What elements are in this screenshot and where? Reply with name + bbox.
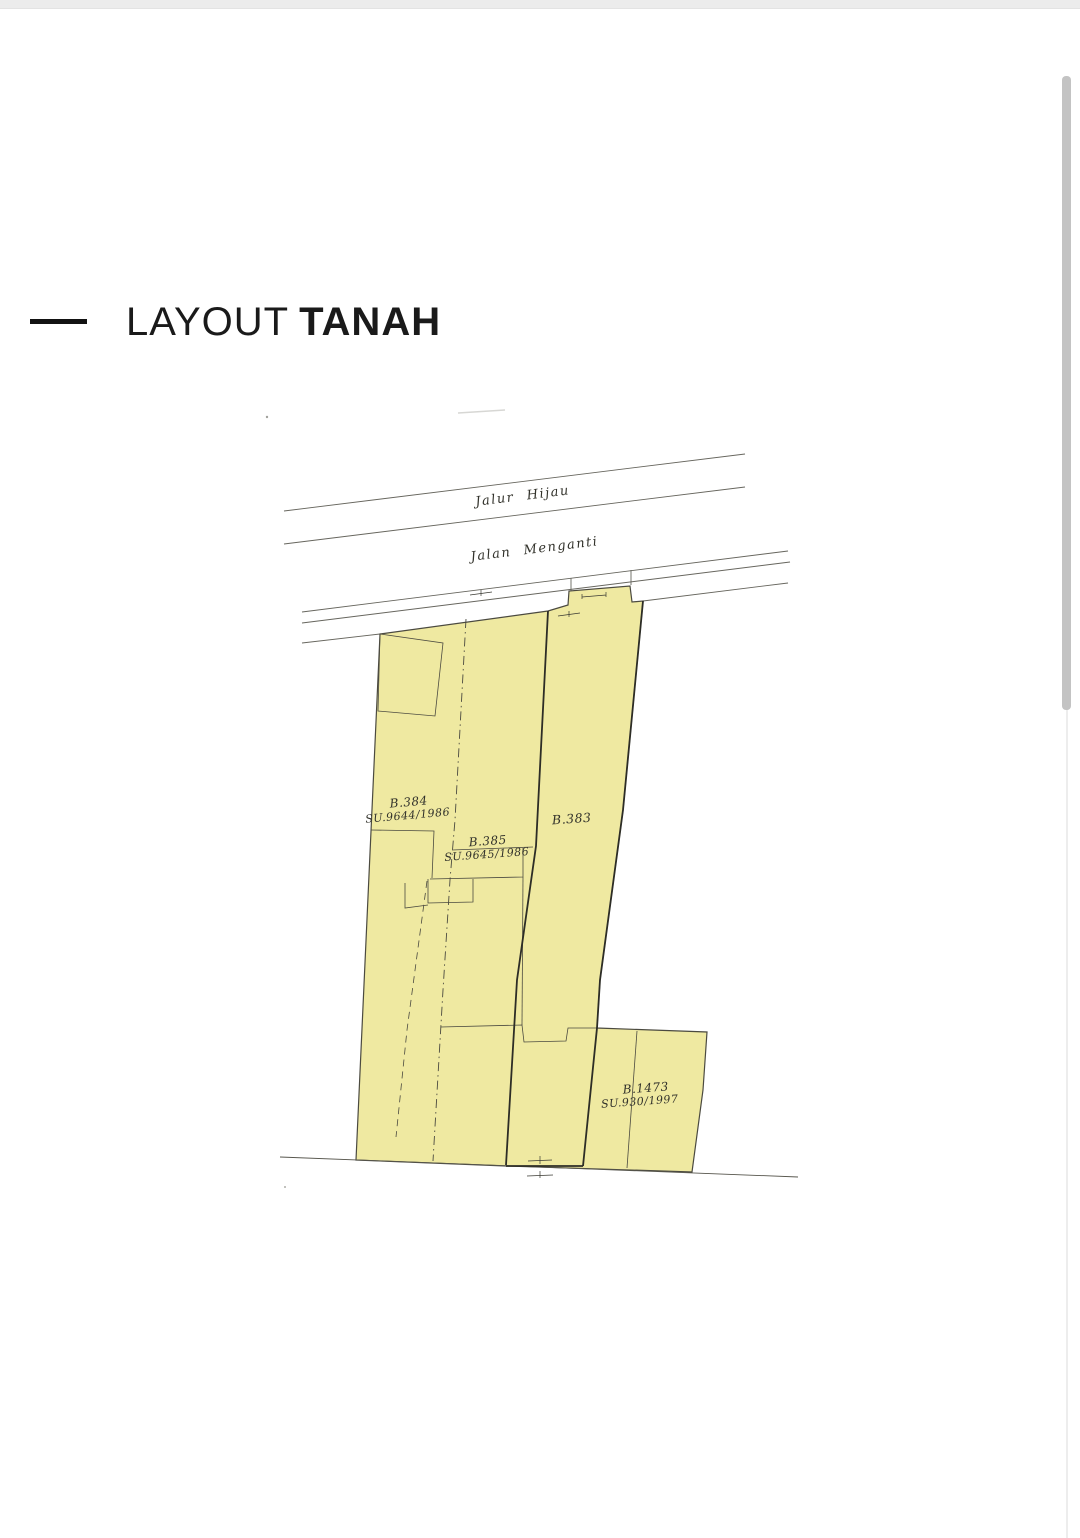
frontage-line-left [302,634,380,643]
section-marker-dash [30,319,87,324]
page-title-bold: TANAH [299,300,441,344]
top-strip [0,0,1080,9]
land-layout-map: Jalur Hijau Jalan Menganti B.384 SU.9644… [250,400,810,1210]
jalur-hijau-label: Jalur Hijau [472,483,571,510]
scrollbar-track [1066,708,1068,1538]
survey-tick-bottom-lower [527,1171,553,1178]
parcel-b383-id: B.383 [550,810,591,828]
frontage-line-right [643,583,788,601]
scrollbar-thumb[interactable] [1062,76,1071,710]
page-title-light: LAYOUT [126,300,289,344]
road-line-jalan-menganti-south-1 [302,551,788,612]
title-block: LAYOUTTANAH [0,298,1080,358]
page-title: LAYOUTTANAH [126,298,441,346]
jalan-menganti-label: Jalan Menganti [467,534,599,565]
land-layout-figure: Jalur Hijau Jalan Menganti B.384 SU.9644… [250,400,810,1210]
